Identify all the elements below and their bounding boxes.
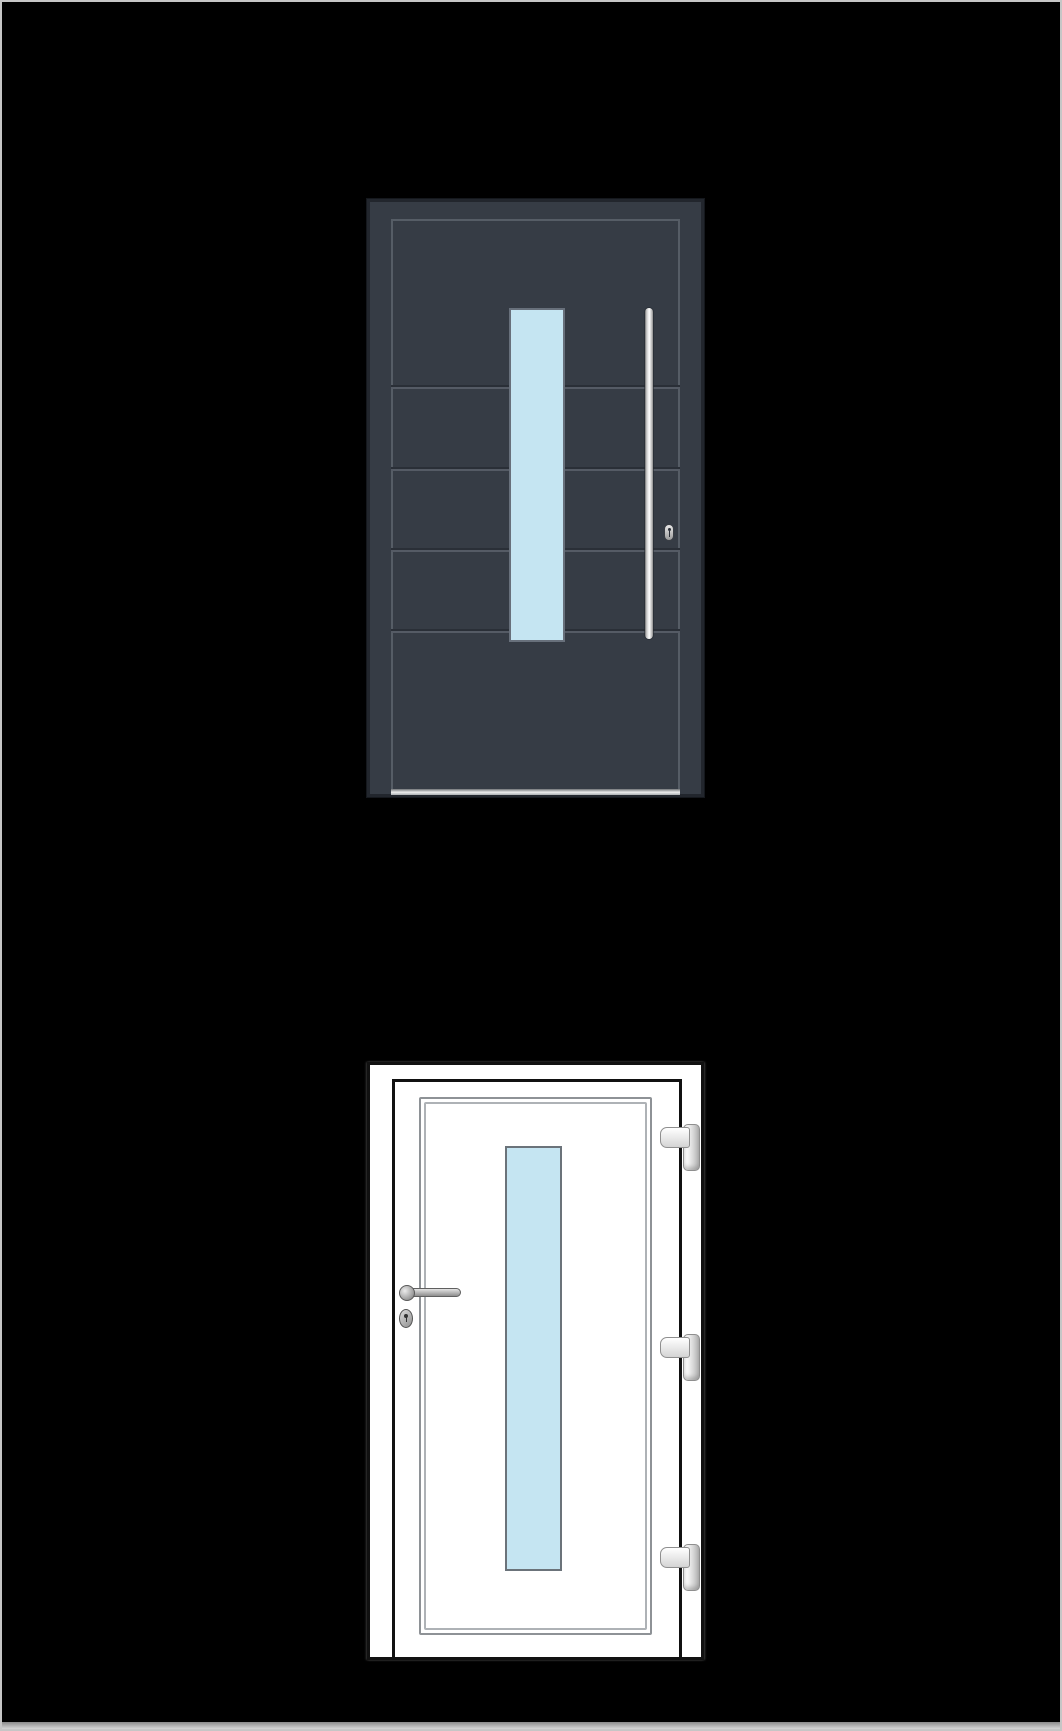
hinge-sleeve xyxy=(660,1127,690,1148)
door-glass-panel xyxy=(505,1146,562,1571)
horizontal-scrollbar[interactable] xyxy=(2,1722,1060,1729)
anthracite-entrance-door[interactable] xyxy=(367,199,704,797)
door-glass-panel xyxy=(509,308,565,642)
door-leaf xyxy=(392,1079,682,1660)
door-threshold-sill xyxy=(391,789,680,795)
lock-cylinder-icon xyxy=(664,524,674,541)
white-entrance-door[interactable] xyxy=(367,1062,704,1660)
lock-escutcheon-icon xyxy=(399,1309,413,1328)
hinge-sleeve xyxy=(660,1547,690,1568)
hinge-sleeve xyxy=(660,1337,690,1358)
handle-rose xyxy=(399,1285,415,1301)
door-bar-handle xyxy=(645,308,653,639)
page-background xyxy=(0,0,1062,1731)
